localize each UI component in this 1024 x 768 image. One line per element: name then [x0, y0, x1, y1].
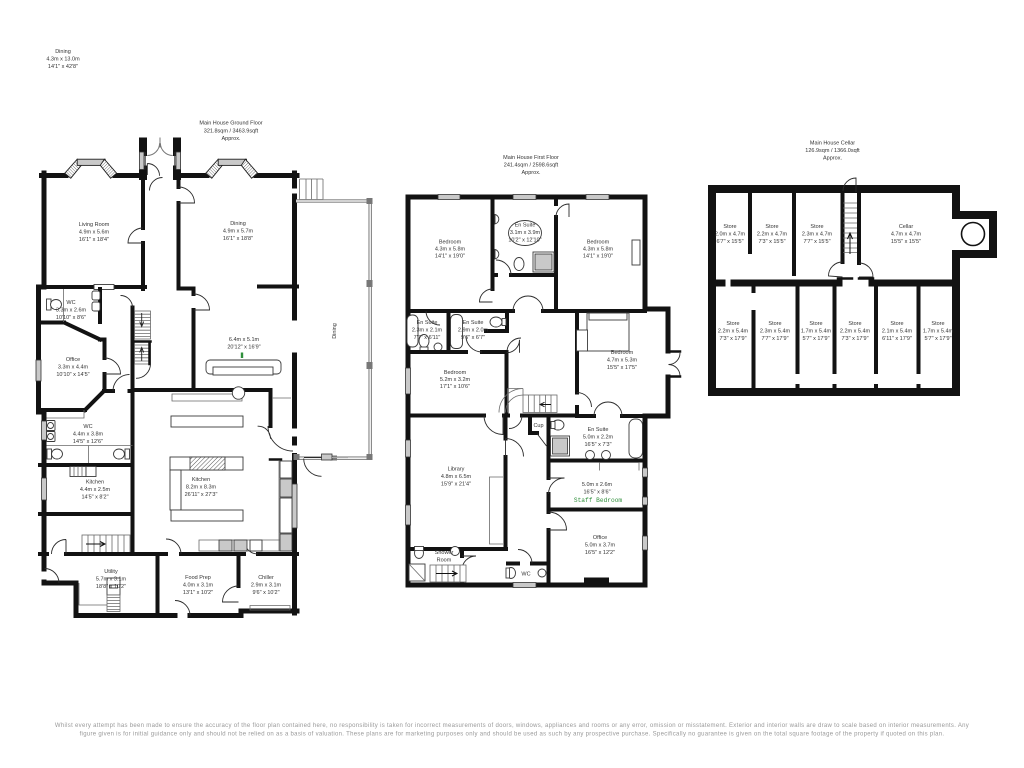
svg-text:Cellar: Cellar — [899, 224, 914, 230]
svg-text:Store: Store — [931, 321, 944, 327]
svg-text:7'3" x 15'5": 7'3" x 15'5" — [758, 239, 785, 245]
svg-text:15'5" x 15'5": 15'5" x 15'5" — [891, 239, 921, 245]
svg-text:2.3m x 4.7m: 2.3m x 4.7m — [802, 232, 833, 238]
svg-text:4.9m x 5.6m: 4.9m x 5.6m — [79, 230, 110, 236]
svg-text:6'11" x 17'9": 6'11" x 17'9" — [882, 336, 912, 342]
svg-text:4.3m x 5.8m: 4.3m x 5.8m — [435, 247, 466, 253]
svg-text:7'7" x 15'5": 7'7" x 15'5" — [803, 239, 830, 245]
svg-text:Library: Library — [448, 467, 465, 473]
svg-text:16'5" x 12'2": 16'5" x 12'2" — [585, 550, 615, 556]
svg-text:WC: WC — [83, 424, 92, 430]
svg-text:Kitchen: Kitchen — [192, 477, 210, 483]
svg-text:14'1" x 42'8": 14'1" x 42'8" — [48, 64, 78, 70]
svg-text:Store: Store — [768, 321, 781, 327]
svg-text:14'1" x 19'0": 14'1" x 19'0" — [435, 254, 465, 260]
svg-text:4.4m x 3.8m: 4.4m x 3.8m — [73, 432, 104, 438]
svg-text:14'1" x 19'0": 14'1" x 19'0" — [583, 254, 613, 260]
svg-text:16'1" x 18'4": 16'1" x 18'4" — [79, 237, 109, 243]
svg-text:WC: WC — [66, 300, 75, 306]
svg-text:14'5" x 12'6": 14'5" x 12'6" — [73, 439, 103, 445]
svg-text:Room: Room — [437, 558, 452, 564]
svg-text:9'6" x 10'2": 9'6" x 10'2" — [252, 590, 279, 596]
svg-text:2.2m x 5.4m: 2.2m x 5.4m — [718, 329, 749, 335]
svg-text:Bedroom: Bedroom — [444, 370, 467, 376]
svg-text:WC: WC — [521, 572, 530, 578]
svg-text:Whilst every attempt has been: Whilst every attempt has been made to en… — [55, 723, 969, 729]
svg-text:16'1" x 18'8": 16'1" x 18'8" — [223, 236, 253, 242]
svg-text:Living Room: Living Room — [79, 222, 110, 228]
svg-text:7'3" x 17'9": 7'3" x 17'9" — [841, 336, 868, 342]
svg-text:14'5" x 8'2": 14'5" x 8'2" — [81, 495, 108, 501]
svg-text:2.2m x 5.4m: 2.2m x 5.4m — [840, 329, 871, 335]
svg-text:1.7m x 5.4m: 1.7m x 5.4m — [923, 329, 954, 335]
svg-text:Store: Store — [726, 321, 739, 327]
svg-text:126.9sqm / 1366.0sqft: 126.9sqm / 1366.0sqft — [805, 148, 860, 154]
svg-text:2.9m x 2.0m: 2.9m x 2.0m — [458, 328, 489, 334]
svg-text:Store: Store — [723, 224, 736, 230]
svg-text:Store: Store — [765, 224, 778, 230]
svg-text:8.2m x 8.3m: 8.2m x 8.3m — [186, 485, 217, 491]
svg-text:4.3m x 5.8m: 4.3m x 5.8m — [583, 247, 614, 253]
svg-text:Bedroom: Bedroom — [587, 240, 610, 246]
svg-text:10'10" x 8'6": 10'10" x 8'6" — [56, 315, 86, 321]
svg-text:5.0m x 3.7m: 5.0m x 3.7m — [585, 543, 616, 549]
svg-text:2.3m x 5.4m: 2.3m x 5.4m — [760, 329, 791, 335]
svg-text:26'11" x 27'3": 26'11" x 27'3" — [185, 492, 218, 498]
svg-text:Main House First Floor: Main House First Floor — [503, 155, 559, 161]
svg-text:5.2m x 3.2m: 5.2m x 3.2m — [440, 377, 471, 383]
svg-text:16'5" x 8'6": 16'5" x 8'6" — [583, 490, 610, 496]
svg-text:2.1m x 5.4m: 2.1m x 5.4m — [882, 329, 913, 335]
svg-text:Store: Store — [810, 224, 823, 230]
svg-text:4.7m x 5.3m: 4.7m x 5.3m — [607, 358, 638, 364]
svg-text:3.1m x 3.9m: 3.1m x 3.9m — [510, 230, 541, 236]
svg-text:Main House Cellar: Main House Cellar — [810, 141, 855, 147]
svg-text:321.8sqm / 3463.9sqft: 321.8sqm / 3463.9sqft — [204, 129, 259, 135]
svg-text:3.3m x 4.4m: 3.3m x 4.4m — [58, 365, 89, 371]
svg-text:241.4sqm / 2598.6sqft: 241.4sqm / 2598.6sqft — [504, 163, 559, 169]
svg-text:Main House Ground Floor: Main House Ground Floor — [199, 121, 262, 127]
svg-text:3.3m x 2.6m: 3.3m x 2.6m — [56, 308, 87, 314]
svg-text:Approx.: Approx. — [522, 170, 541, 176]
svg-text:10'10" x 14'5": 10'10" x 14'5" — [56, 372, 89, 378]
svg-text:16'5" x 7'3": 16'5" x 7'3" — [584, 442, 611, 448]
svg-text:4.0m x 3.1m: 4.0m x 3.1m — [183, 583, 214, 589]
svg-text:2.0m x 4.7m: 2.0m x 4.7m — [715, 232, 746, 238]
svg-text:En Suite: En Suite — [463, 320, 484, 326]
svg-text:4.7m x 4.7m: 4.7m x 4.7m — [891, 232, 922, 238]
svg-text:7'7" x 6'11": 7'7" x 6'11" — [414, 335, 441, 341]
svg-text:7'7" x 17'9": 7'7" x 17'9" — [761, 336, 788, 342]
svg-text:5'7" x 17'9": 5'7" x 17'9" — [924, 336, 951, 342]
svg-text:15'5" x 17'5": 15'5" x 17'5" — [607, 365, 637, 371]
svg-text:Bedroom: Bedroom — [611, 350, 634, 356]
svg-text:Approx.: Approx. — [222, 136, 241, 142]
svg-text:Office: Office — [593, 535, 607, 541]
svg-text:17'1" x 10'6": 17'1" x 10'6" — [440, 384, 470, 390]
svg-text:7'3" x 17'9": 7'3" x 17'9" — [719, 336, 746, 342]
svg-text:5.0m x 2.2m: 5.0m x 2.2m — [583, 435, 614, 441]
svg-text:5.0m x 2.6m: 5.0m x 2.6m — [582, 482, 613, 488]
svg-text:Staff Bedroom: Staff Bedroom — [574, 497, 623, 504]
svg-text:Approx.: Approx. — [823, 156, 842, 162]
svg-text:Food Prep: Food Prep — [185, 575, 211, 581]
svg-text:13'1" x 10'2": 13'1" x 10'2" — [183, 590, 213, 596]
svg-text:2.2m x 4.7m: 2.2m x 4.7m — [757, 232, 788, 238]
svg-text:4.4m x 2.5m: 4.4m x 2.5m — [80, 487, 111, 493]
svg-text:Utility: Utility — [104, 569, 118, 575]
svg-text:2.3m x 2.1m: 2.3m x 2.1m — [412, 328, 443, 334]
svg-text:figure given is for initial gu: figure given is for initial guidance onl… — [80, 732, 945, 738]
svg-text:Store: Store — [890, 321, 903, 327]
svg-text:Store: Store — [809, 321, 822, 327]
svg-text:Kitchen: Kitchen — [86, 480, 104, 486]
svg-text:20'12" x 16'9": 20'12" x 16'9" — [227, 345, 260, 351]
svg-text:9'6" x 6'7": 9'6" x 6'7" — [461, 335, 485, 341]
svg-text:Chiller: Chiller — [258, 575, 274, 581]
svg-text:4.3m x 13.0m: 4.3m x 13.0m — [46, 57, 80, 63]
svg-text:En Suite: En Suite — [515, 223, 536, 229]
svg-text:Office: Office — [66, 357, 80, 363]
svg-text:10'2" x 12'10": 10'2" x 12'10" — [508, 238, 541, 244]
svg-text:6.4m x 5.1m: 6.4m x 5.1m — [229, 337, 260, 343]
svg-text:En Suite: En Suite — [417, 320, 438, 326]
svg-text:En Suite: En Suite — [588, 427, 609, 433]
svg-text:6'7" x 15'5": 6'7" x 15'5" — [716, 239, 743, 245]
svg-text:Bedroom: Bedroom — [439, 240, 462, 246]
svg-text:5.7m x 3.1m: 5.7m x 3.1m — [96, 577, 127, 583]
svg-text:Cup: Cup — [533, 423, 543, 429]
svg-text:4.9m x 5.7m: 4.9m x 5.7m — [223, 229, 254, 235]
svg-text:18'8" x 10'2": 18'8" x 10'2" — [96, 584, 126, 590]
svg-text:Dining: Dining — [230, 221, 246, 227]
svg-text:Shower: Shower — [435, 550, 454, 556]
svg-text:Dining: Dining — [55, 49, 71, 55]
svg-text:15'9" x 21'4": 15'9" x 21'4" — [441, 482, 471, 488]
svg-text:Dining: Dining — [332, 323, 338, 339]
svg-text:2.9m x 3.1m: 2.9m x 3.1m — [251, 583, 282, 589]
svg-text:5'7" x 17'9": 5'7" x 17'9" — [802, 336, 829, 342]
svg-text:4.8m x 6.5m: 4.8m x 6.5m — [441, 474, 472, 480]
svg-text:1.7m x 5.4m: 1.7m x 5.4m — [801, 329, 832, 335]
svg-text:Store: Store — [848, 321, 861, 327]
